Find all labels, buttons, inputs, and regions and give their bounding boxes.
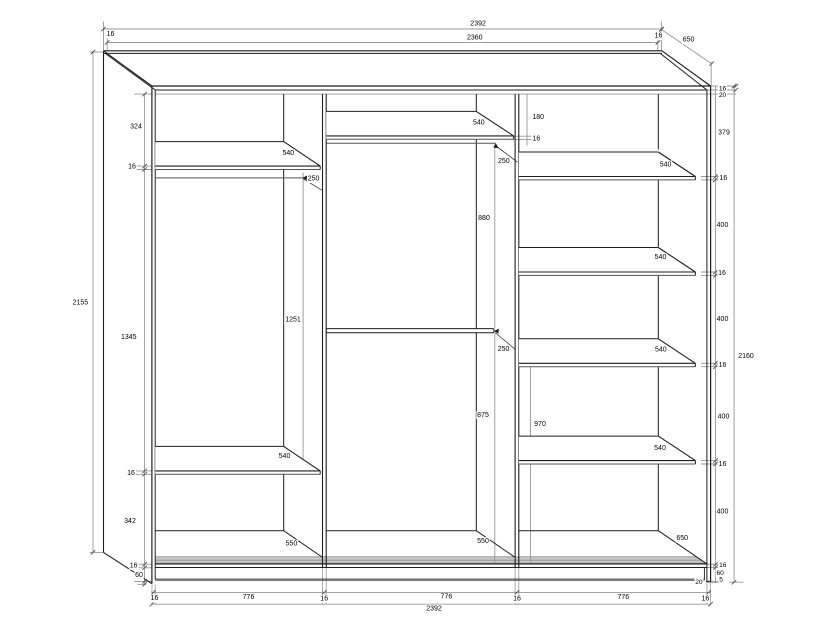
svg-text:16: 16 xyxy=(719,461,727,468)
svg-text:2392: 2392 xyxy=(470,21,486,28)
svg-text:16: 16 xyxy=(320,595,328,602)
svg-text:400: 400 xyxy=(717,222,729,229)
svg-text:400: 400 xyxy=(718,414,730,421)
svg-text:2155: 2155 xyxy=(73,300,89,307)
svg-text:60: 60 xyxy=(135,572,143,579)
svg-text:540: 540 xyxy=(655,254,667,261)
svg-text:776: 776 xyxy=(441,594,453,601)
svg-text:16: 16 xyxy=(719,362,727,369)
svg-text:2392: 2392 xyxy=(426,605,442,612)
svg-text:1345: 1345 xyxy=(121,334,137,341)
svg-text:540: 540 xyxy=(655,347,667,354)
svg-text:540: 540 xyxy=(279,453,291,460)
svg-text:16: 16 xyxy=(655,33,663,40)
svg-text:650: 650 xyxy=(683,37,695,44)
svg-text:540: 540 xyxy=(660,161,672,168)
svg-text:250: 250 xyxy=(498,346,510,353)
svg-text:16: 16 xyxy=(513,595,521,602)
svg-text:16: 16 xyxy=(718,270,726,277)
svg-text:2360: 2360 xyxy=(467,35,483,42)
svg-text:880: 880 xyxy=(478,215,490,222)
svg-text:540: 540 xyxy=(654,445,666,452)
svg-text:550: 550 xyxy=(286,541,298,548)
svg-text:875: 875 xyxy=(477,412,489,419)
svg-text:550: 550 xyxy=(477,538,489,545)
svg-text:379: 379 xyxy=(718,130,730,137)
svg-text:1251: 1251 xyxy=(285,317,301,324)
svg-text:400: 400 xyxy=(717,316,729,323)
svg-text:16: 16 xyxy=(151,595,159,602)
svg-text:540: 540 xyxy=(282,150,294,157)
svg-text:342: 342 xyxy=(124,518,136,525)
svg-text:16: 16 xyxy=(533,136,541,143)
svg-text:250: 250 xyxy=(498,158,510,165)
svg-text:16: 16 xyxy=(130,562,138,569)
svg-text:5: 5 xyxy=(719,576,723,583)
svg-text:16: 16 xyxy=(720,175,728,182)
svg-text:16: 16 xyxy=(127,470,135,477)
svg-text:970: 970 xyxy=(534,421,546,428)
svg-text:400: 400 xyxy=(717,509,729,516)
svg-text:180: 180 xyxy=(532,114,544,121)
svg-text:16: 16 xyxy=(128,163,136,170)
svg-text:16: 16 xyxy=(107,31,115,38)
svg-text:776: 776 xyxy=(617,594,629,601)
svg-text:776: 776 xyxy=(243,594,255,601)
svg-text:20: 20 xyxy=(719,92,727,99)
svg-text:650: 650 xyxy=(676,535,688,542)
svg-text:20: 20 xyxy=(695,579,703,586)
svg-text:2160: 2160 xyxy=(738,353,754,360)
svg-text:324: 324 xyxy=(130,124,142,131)
svg-text:16: 16 xyxy=(702,595,710,602)
svg-text:16: 16 xyxy=(719,562,727,569)
svg-text:250: 250 xyxy=(308,176,320,183)
svg-text:540: 540 xyxy=(473,120,485,127)
